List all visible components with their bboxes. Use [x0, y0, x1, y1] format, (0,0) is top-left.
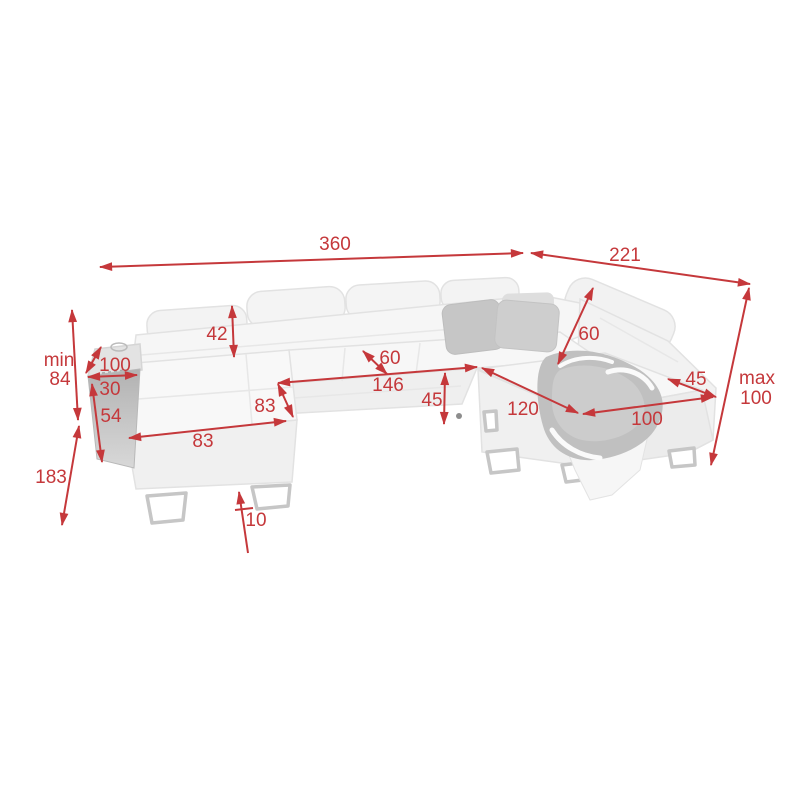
sofa-leg-4 [487, 449, 519, 473]
dim-backrest-min-height: min 84 [44, 310, 78, 420]
dim-left-armrest-length-label: 100 [99, 355, 131, 376]
dim-right-seat-length-label: 120 [507, 399, 539, 420]
dim-right-depth: 221 [531, 245, 750, 284]
dim-leg-height-label: 10 [245, 510, 266, 531]
dim-backrest-max-value: 100 [740, 388, 772, 409]
dim-seat-height-label: 45 [421, 390, 442, 411]
dim-headrest-height-label: 42 [206, 324, 227, 345]
dim-right-seat-width-label: 100 [631, 409, 663, 430]
dim-backrest-max-height: max 100 [711, 288, 775, 465]
dim-chaise-seat-depth-label: 83 [254, 396, 275, 417]
sofa-leg-3 [484, 411, 497, 431]
dim-seat-cushion-depth-label: 60 [379, 348, 400, 369]
dim-chaise-depth-total: 183 [35, 426, 79, 525]
sofa-dimension-diagram: 360 221 42 100 30 min 84 54 [0, 0, 800, 800]
sofa-leg-1 [147, 493, 186, 523]
dim-backrest-max-prefix: max [739, 368, 775, 389]
dim-right-armrest-width-label: 45 [685, 369, 706, 390]
dim-backrest-min-prefix: min [44, 350, 75, 371]
dim-total-width: 360 [100, 234, 523, 267]
dim-chaise-depth-total-label: 183 [35, 467, 67, 488]
dim-seat-length-label: 146 [372, 375, 404, 396]
sofa-leg-6 [669, 448, 695, 467]
dim-left-armrest-width-label: 30 [99, 379, 120, 400]
dim-corner-backrest-height-label: 60 [578, 324, 599, 345]
corner-pillow-1 [441, 299, 505, 356]
diagram-canvas: 360 221 42 100 30 min 84 54 [0, 0, 800, 800]
dim-backrest-min-value: 84 [49, 369, 71, 390]
corner-pillow-2 [494, 299, 560, 352]
caster-dot [456, 413, 462, 419]
dim-base-side-height-label: 54 [100, 406, 122, 427]
sofa-leg-2 [252, 485, 290, 509]
dim-chaise-width-label: 83 [192, 431, 213, 452]
sofa [88, 272, 716, 523]
dim-right-depth-label: 221 [609, 245, 641, 266]
dim-total-width-label: 360 [319, 234, 351, 255]
